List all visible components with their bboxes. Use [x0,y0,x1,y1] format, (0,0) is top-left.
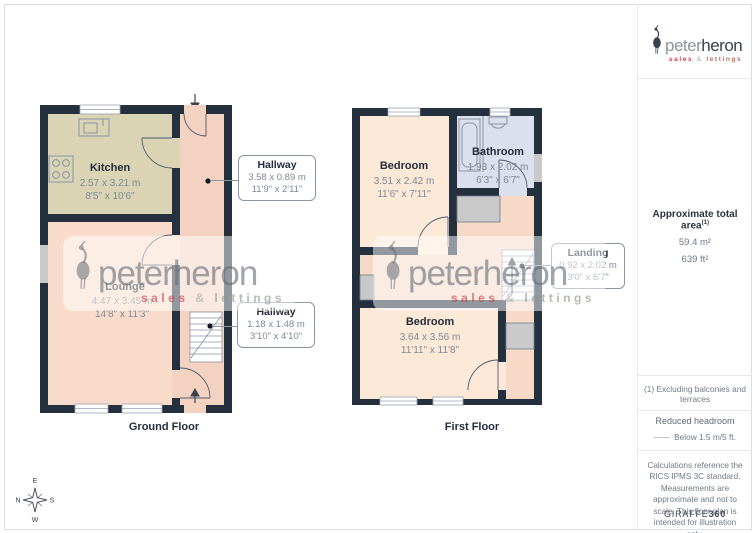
sidebar-divider [638,450,752,451]
reduced-headroom-legend: Below 1.5 m/5 ft. [638,432,752,442]
bedroom-back-door-opening [498,362,506,390]
kitchen-dims-m: 2.57 x 3.21 m [80,178,141,189]
left-wall-window [40,245,48,283]
bathroom-window [534,154,542,182]
total-area-block: Approximate total area(1) 59.4 m² 639 ft… [638,209,752,265]
hallway-lower-dims-m: 1.18 x 1.48 m [242,319,310,331]
bedroom-back-top-wall [360,300,506,308]
back-closet [506,323,534,349]
hallway-lower-callout: Hallway 1.18 x 1.48 m 3'10" x 4'10" [237,302,315,348]
kitchen-dims-ft: 8'5" x 10'6" [85,191,135,202]
bedroom-front-name: Bedroom [380,160,429,172]
bedroom-front-dims-ft: 11'6" x 7'11" [377,189,431,200]
hallway-upper-callout: Hallway 3.58 x 0.89 m 11'9" x 2'11" [238,155,316,201]
footnote-ref: (1) [702,220,709,226]
landing-callout: Landing 0.92 x 2.02 m 3'0" x 6'7" [551,243,625,289]
hallway-lower-leader [212,326,238,327]
compass-south: S [50,498,55,505]
sidebar-divider [638,375,752,376]
bedroom-front-door-opening [418,247,448,255]
back-door-opening [184,405,206,413]
hallway-upper-dims-m: 3.58 x 0.89 m [243,172,311,184]
hallway-lower-dims-ft: 3'10" x 4'10" [242,331,310,343]
compass-rose: E N S W [14,474,56,524]
bedroom-front-dims-m: 3.51 x 2.42 m [374,176,435,187]
landing-dims-m: 0.92 x 2.02 m [556,260,620,272]
floorplan-page: Kitchen 2.57 x 3.21 m 8'5" x 10'6" Loung… [0,0,755,533]
total-area-metric: 59.4 m² [638,237,752,248]
lounge-dims-m: 4.47 x 3.45 m [92,296,153,307]
bathroom-door-opening [499,188,527,196]
kitchen-name: Kitchen [90,162,131,174]
bedroom-back-name: Bedroom [406,316,455,328]
landing-leader [524,265,552,266]
ground-stairs [190,312,222,362]
brand-logo: peterheron sales & lettings [651,25,742,63]
total-area-title: Approximate total area(1) [638,209,752,231]
hallway-lower-name: Hallway [242,306,310,319]
landing-name: Landing [556,247,620,260]
compass-north: N [15,498,20,505]
bedroom-back-dims-m: 3.64 x 3.56 m [400,332,461,343]
bedroom-bathroom-wall [449,116,457,255]
area-footnote: (1) Excluding balconies and terraces [642,378,748,410]
info-sidebar: Approximate total area(1) 59.4 m² 639 ft… [637,4,752,529]
hallway-upper-leader [210,180,239,181]
front-door-opening [184,105,206,114]
compass-star-icon [23,488,47,512]
sidebar-divider [638,410,752,411]
landing-corridor-floor [360,255,457,300]
landing-dims-ft: 3'0" x 6'7" [556,272,620,284]
brand-tagline: sales & lettings [651,56,742,63]
first-stairs [502,250,534,300]
hallway-upper-name: Hallway [243,159,311,172]
ground-floor-plan: Kitchen 2.57 x 3.21 m 8'5" x 10'6" Loung… [35,90,240,430]
heron-icon [651,25,664,54]
compass-west: W [32,517,39,524]
back-right-strip-floor [506,300,534,399]
hallway-upper-dims-ft: 11'9" x 2'11" [243,184,311,196]
left-wall-cupboard [360,275,374,300]
bathroom-name: Bathroom [472,146,524,158]
kitchen-door-opening [172,138,180,168]
total-area-imperial: 639 ft² [638,254,752,265]
lounge-name: Lounge [105,281,145,293]
bathroom-dims-m: 1.93 x 2.02 m [468,162,529,173]
reduced-headroom-block: Reduced headroom Below 1.5 m/5 ft. [638,416,752,442]
lounge-dims-ft: 14'8" x 11'3" [95,309,150,320]
headroom-line-swatch [654,437,670,438]
bathroom-dims-ft: 6'3" x 6'7" [476,175,520,186]
airing-cupboard [457,196,500,222]
bedroom-back-dims-ft: 11'11" x 11'8" [401,345,460,356]
lounge-door-opening [172,235,180,265]
provider-logo: GIRAFFE360 [638,509,752,519]
reduced-headroom-title: Reduced headroom [638,416,752,426]
brand-name: peterheron [665,36,742,55]
sidebar-divider [638,78,752,79]
vestibule-door-opening [172,370,180,398]
compass-east: E [33,478,38,485]
disclaimer-text: Calculations reference the RICS IPMS 3C … [645,460,745,533]
first-floor-plan: Bedroom 3.51 x 2.42 m 11'6" x 7'11" Bath… [348,90,553,430]
